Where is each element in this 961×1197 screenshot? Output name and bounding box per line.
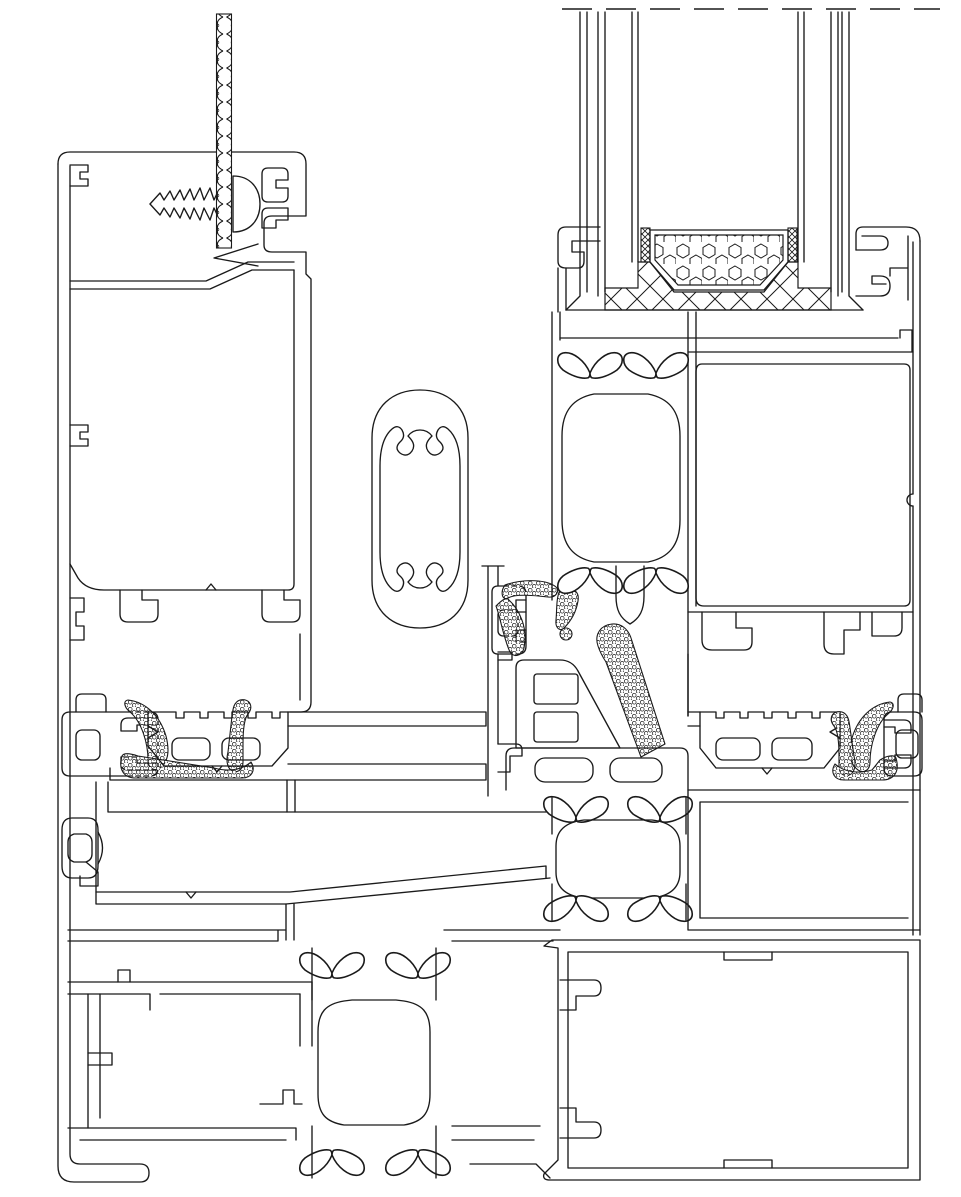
paper-background [0, 0, 961, 1197]
profile-section-drawing: Aluminium door threshold and glazing pro… [0, 0, 961, 1197]
edge-tape-left [641, 228, 650, 262]
braided-cable [217, 14, 232, 248]
cad-canvas: Aluminium door threshold and glazing pro… [0, 0, 961, 1197]
desiccant-fill [655, 235, 783, 285]
spacer-bar [650, 230, 788, 290]
edge-tape-right [788, 228, 797, 262]
